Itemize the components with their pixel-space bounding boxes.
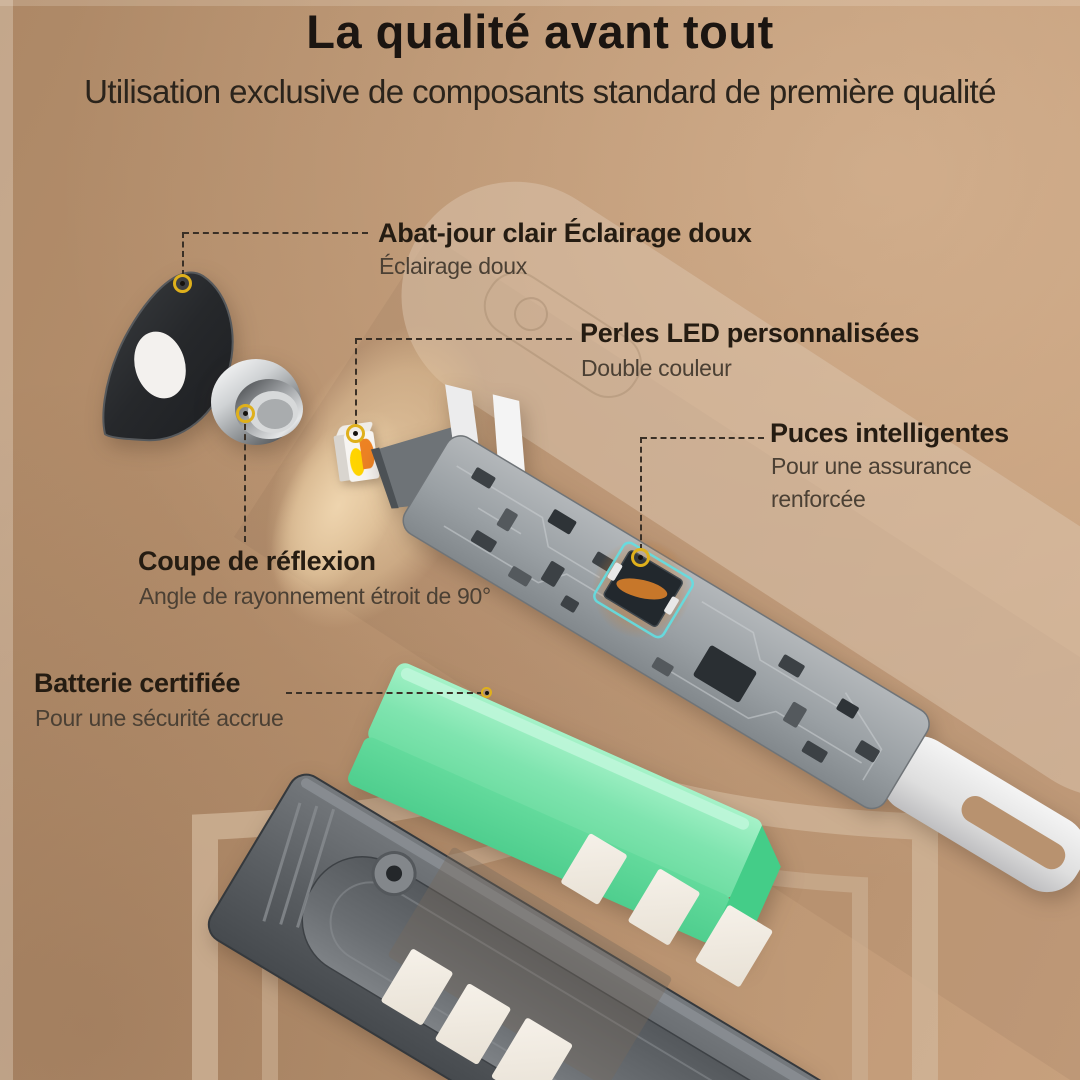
callout-line xyxy=(640,437,642,550)
callout-title-lampshade: Abat-jour clair Éclairage doux xyxy=(378,218,752,249)
callout-marker xyxy=(346,424,365,443)
callout-subtitle-lampshade: Éclairage doux xyxy=(379,250,527,283)
callout-title-reflector: Coupe de réflexion xyxy=(138,546,376,577)
callout-line xyxy=(356,338,572,340)
top-edge-highlight xyxy=(0,0,1080,6)
callout-marker xyxy=(173,274,192,293)
callout-line xyxy=(641,437,764,439)
callout-line xyxy=(355,338,357,426)
callout-line xyxy=(286,692,483,694)
callout-title-chips: Puces intelligentes xyxy=(770,418,1009,449)
callout-marker xyxy=(481,687,492,698)
callout-subtitle-reflector: Angle de rayonnement étroit de 90° xyxy=(139,580,491,613)
callout-line xyxy=(183,232,368,234)
product-infographic: La qualité avant tout Utilisation exclus… xyxy=(0,0,1080,1080)
callout-marker xyxy=(236,404,255,423)
callout-title-battery: Batterie certifiée xyxy=(34,668,240,699)
callout-line xyxy=(244,424,246,542)
callout-subtitle-chips: Pour une assurance renforcée xyxy=(771,450,991,517)
callout-marker xyxy=(631,548,650,567)
callout-line xyxy=(182,232,184,276)
callout-subtitle-led: Double couleur xyxy=(581,352,732,385)
page-title: La qualité avant tout xyxy=(0,4,1080,59)
callout-title-led: Perles LED personnalisées xyxy=(580,318,919,349)
left-edge-highlight xyxy=(0,0,13,1080)
callout-subtitle-battery: Pour une sécurité accrue xyxy=(35,702,284,735)
page-subtitle: Utilisation exclusive de composants stan… xyxy=(0,73,1080,111)
